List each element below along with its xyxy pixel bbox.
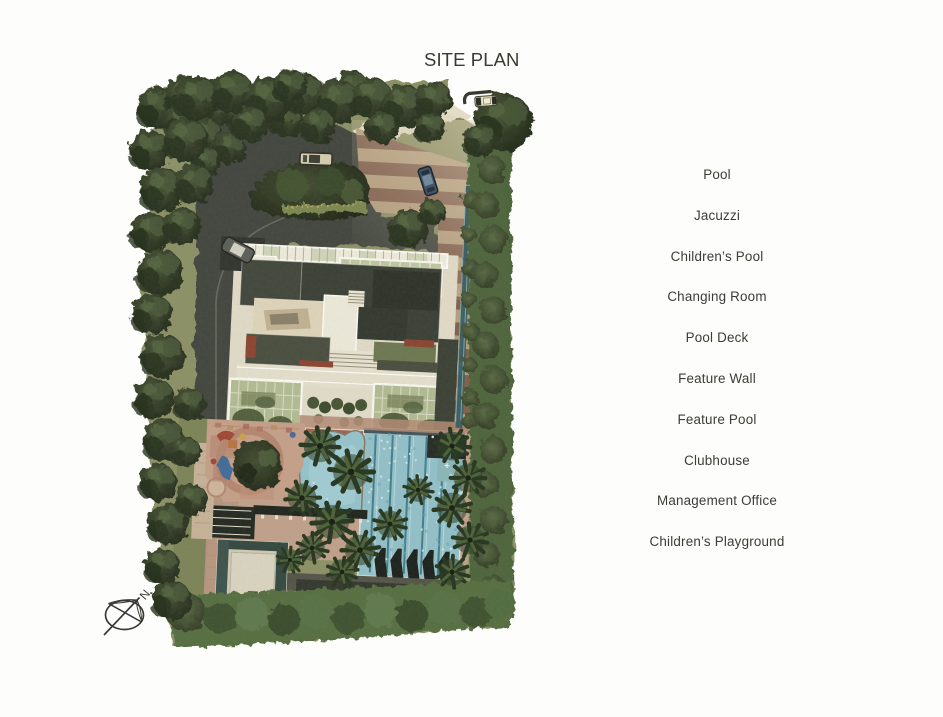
svg-text:N: N xyxy=(137,587,153,603)
